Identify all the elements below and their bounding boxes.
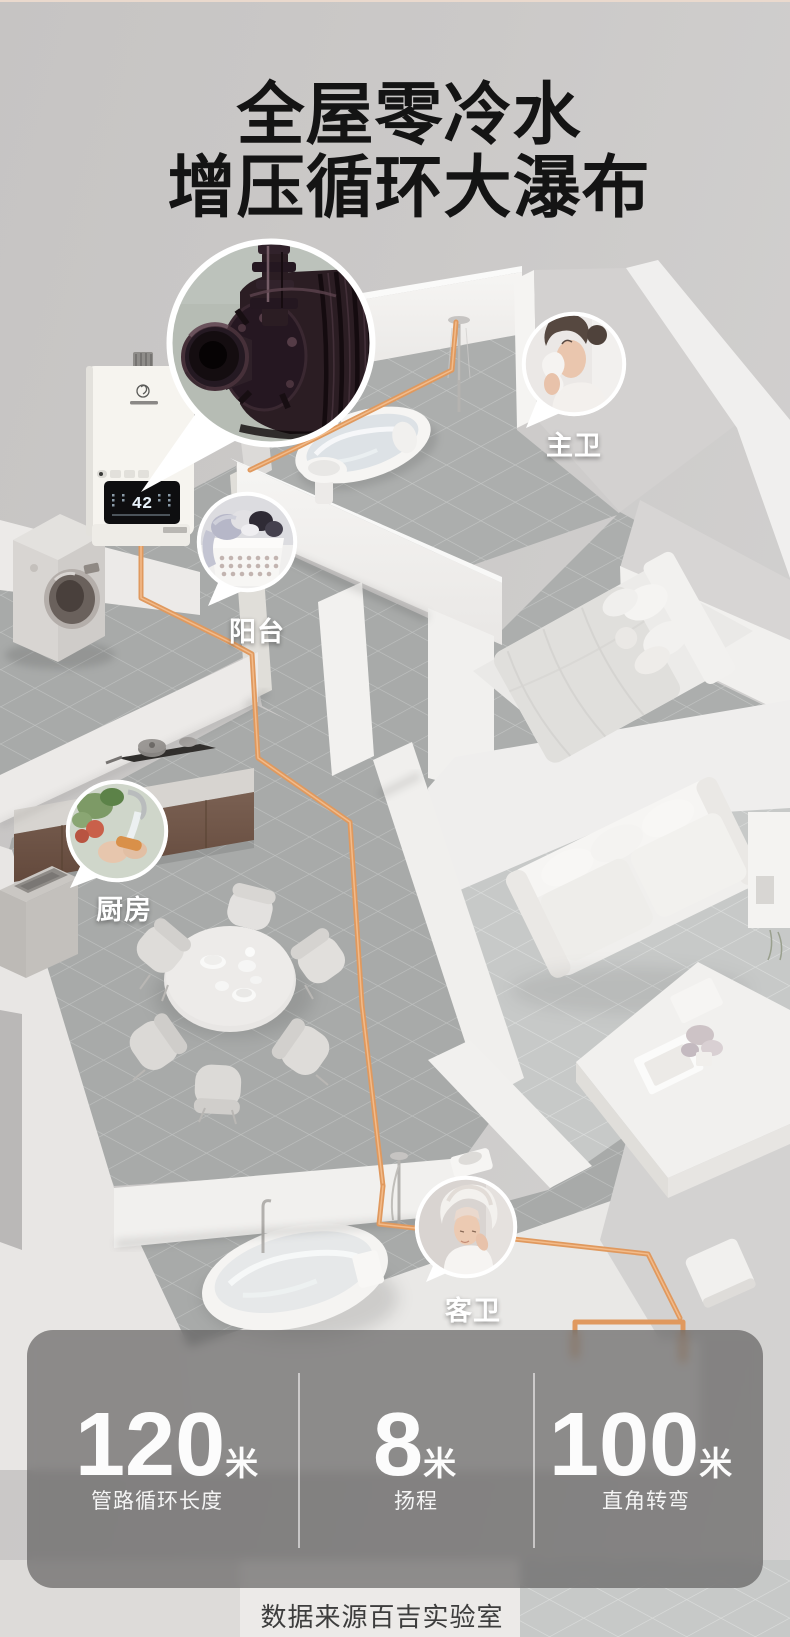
svg-text:42: 42 [132,495,152,514]
